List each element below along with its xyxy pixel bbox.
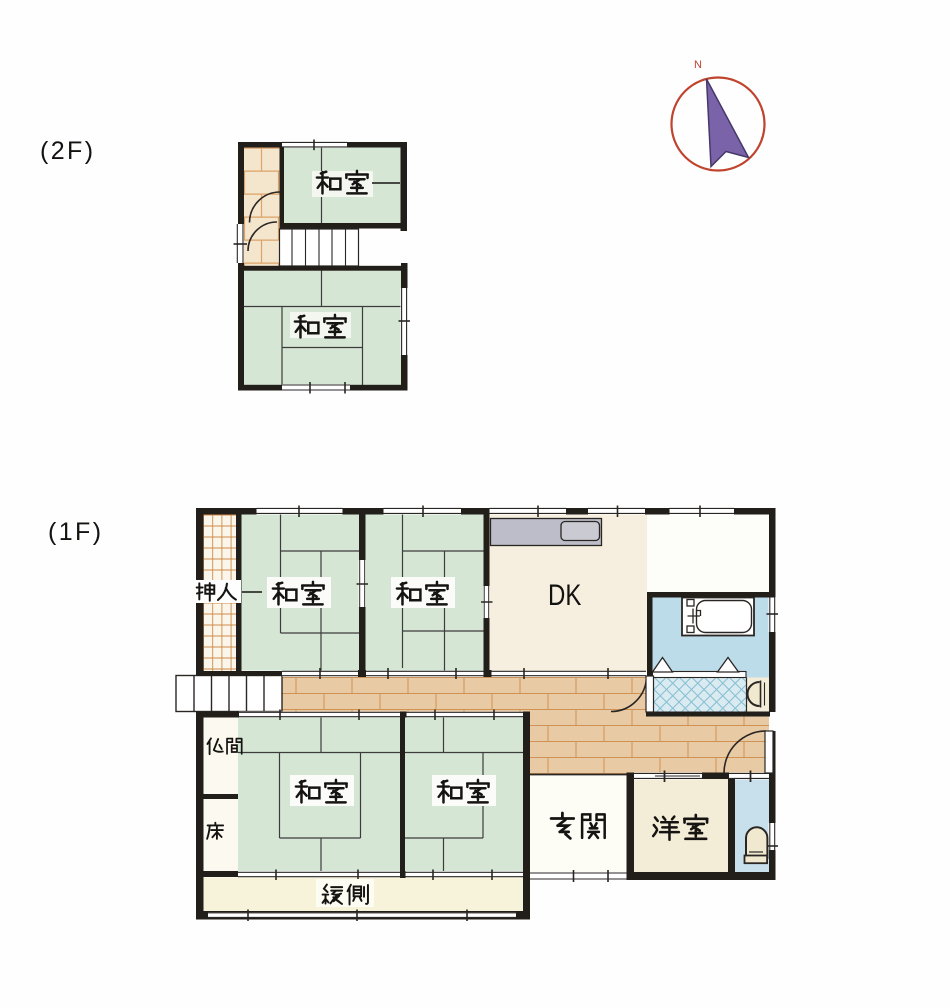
svg-text:N: N	[694, 59, 702, 71]
svg-text:(2F): (2F)	[40, 137, 95, 165]
svg-text:DK: DK	[548, 577, 581, 611]
svg-text:(1F): (1F)	[48, 518, 103, 546]
